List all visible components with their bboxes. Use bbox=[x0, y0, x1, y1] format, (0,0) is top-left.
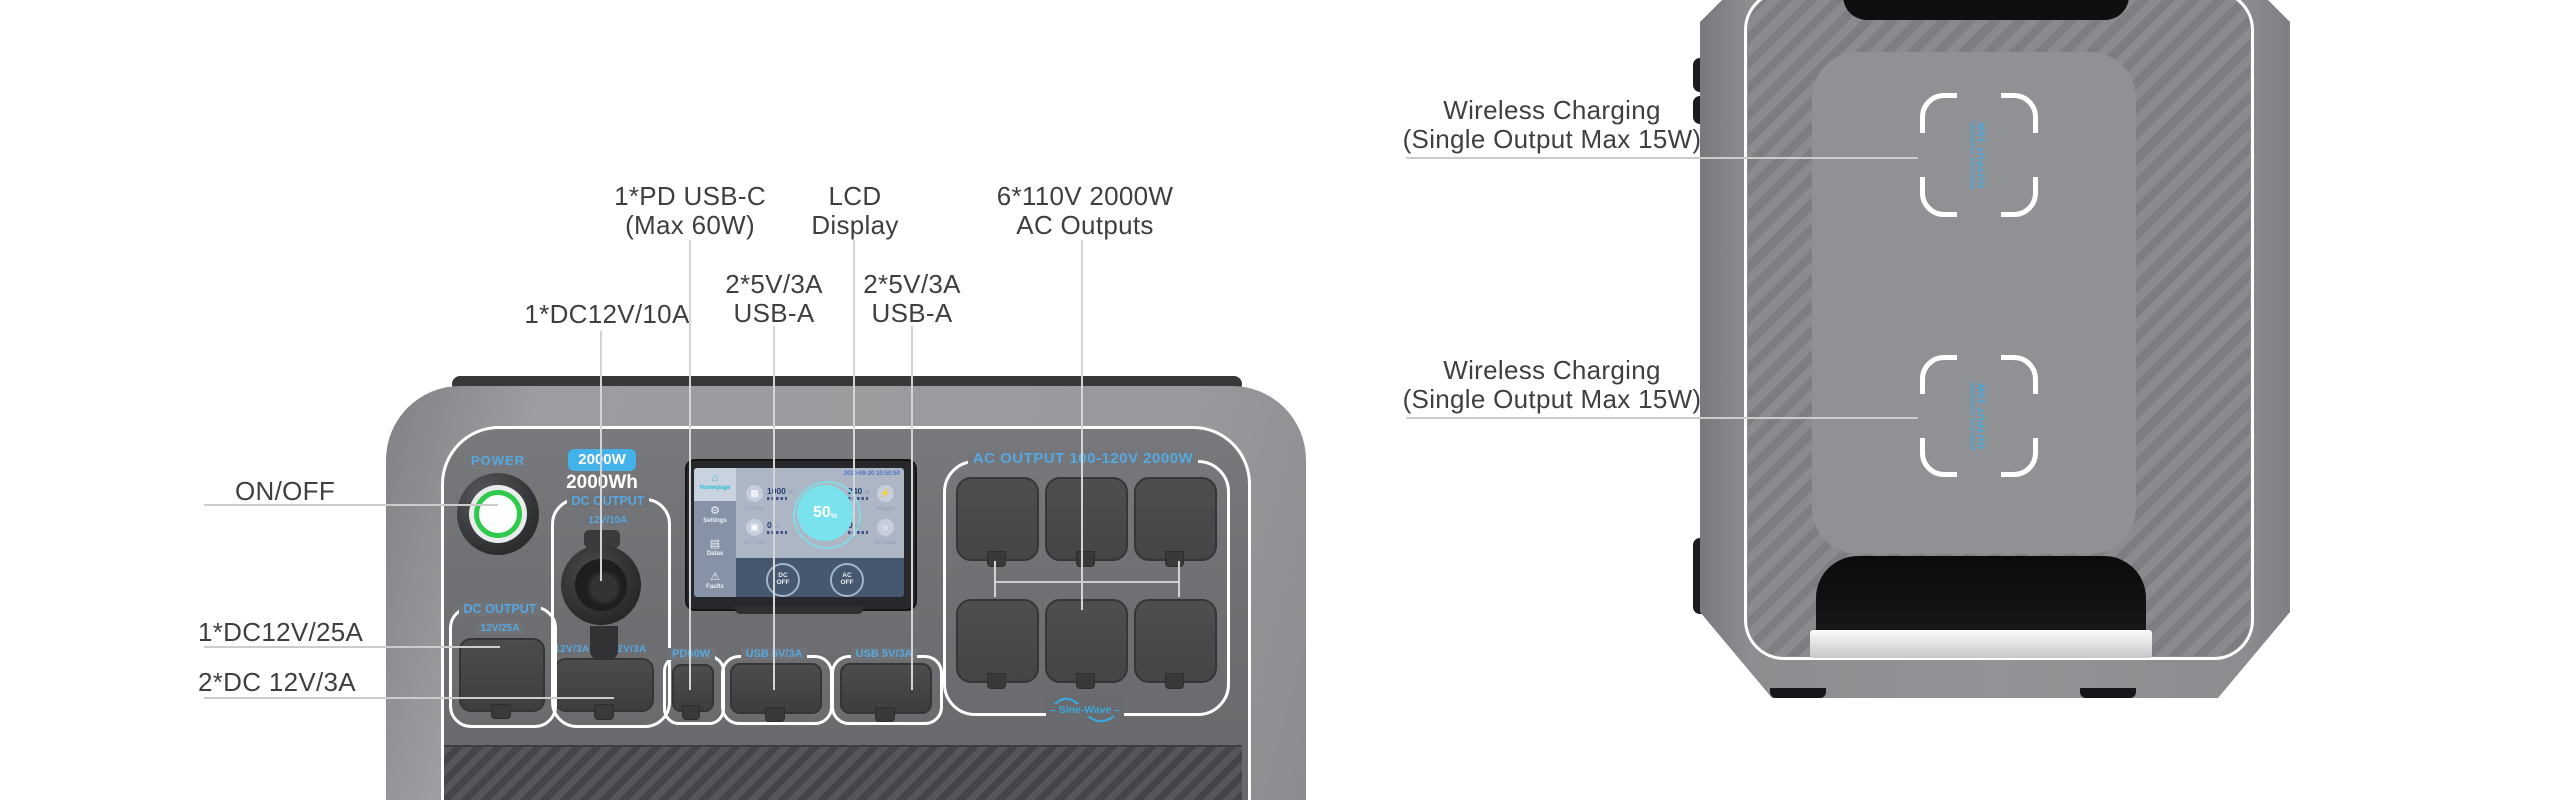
pad2-gap-bottom bbox=[1957, 468, 2001, 482]
callout-line-wireless-2 bbox=[1406, 417, 1918, 419]
lcd-menu-homepage: ⌂ Homepage bbox=[694, 468, 736, 501]
rated-power-badge: 2000W bbox=[568, 449, 636, 471]
top-handle-cutout bbox=[1843, 0, 2129, 20]
dc-12v3a-port-tab bbox=[594, 704, 614, 720]
ac-outlet-5 bbox=[1045, 599, 1128, 683]
callout-ac-bracket bbox=[994, 581, 1179, 583]
ac-outlet-6-tab bbox=[1165, 673, 1184, 689]
lcd-base bbox=[735, 606, 863, 614]
pv-label: PV/Car bbox=[737, 506, 773, 512]
callout-line-usb1 bbox=[773, 326, 775, 690]
pv-bars bbox=[767, 497, 787, 500]
pv-value: 1000 bbox=[767, 486, 786, 496]
lcd-main: 2020-09-20 10:50:50 ▦ 1000 W PV/Car ▣ 0 … bbox=[736, 468, 904, 597]
sine-wave-text: Sine-Wave bbox=[1048, 704, 1122, 716]
dc25-sub: 12V/25A bbox=[476, 623, 525, 634]
pad1-text-large: OUTPUT 15W bbox=[1977, 121, 1988, 190]
usb2-label: USB 5V/3A bbox=[851, 648, 918, 660]
product-diagram: POWER 2000W 2000Wh DC OUTPUT 12V/10A 12V… bbox=[0, 0, 2560, 800]
wireless-pad-1-text: WIRELESS CHARGING OUTPUT 15W bbox=[1971, 121, 1988, 190]
callout-line-dc25 bbox=[204, 646, 500, 648]
callout-wireless-2: Wireless Charging (Single Output Max 15W… bbox=[1385, 356, 1719, 414]
adapter-icon: ⚡ bbox=[877, 485, 894, 502]
dc-off-button: DC OFF bbox=[766, 563, 800, 597]
callout-wireless-2-line1: Wireless Charging bbox=[1443, 355, 1661, 385]
callout-ac-stub-right bbox=[1178, 561, 1180, 597]
ac-outlet-2-tab bbox=[1076, 551, 1095, 567]
home-icon: ⌂ bbox=[694, 471, 736, 485]
wireless-pad-2: WIRELESS CHARGING OUTPUT 15W bbox=[1920, 355, 2038, 477]
callout-wireless-2-line2: (Single Output Max 15W) bbox=[1403, 384, 1702, 414]
callout-dc25: 1*DC12V/25A bbox=[198, 618, 378, 647]
adapter-unit: W bbox=[865, 490, 870, 496]
dc10-title: DC OUTPUT bbox=[567, 494, 650, 508]
pad2-gap-top bbox=[1957, 350, 2001, 364]
lcd-menu-faults: ⚠ Faults bbox=[694, 567, 736, 597]
pd-usbc-port-tab bbox=[682, 705, 700, 720]
pad1-gap-right bbox=[2029, 133, 2043, 177]
bottom-handle-cutout bbox=[1816, 556, 2146, 636]
power-label: POWER bbox=[450, 454, 546, 469]
callout-usb2: 2*5V/3A USB-A bbox=[822, 270, 1002, 328]
dc-12v25a-port-tab bbox=[491, 704, 511, 719]
capacity-text: 2000Wh bbox=[556, 472, 648, 494]
wireless-pad-1: WIRELESS CHARGING OUTPUT 15W bbox=[1920, 93, 2038, 217]
top-view-body: WIRELESS CHARGING OUTPUT 15W WIRELESS CH… bbox=[1700, 0, 2290, 698]
pd-label: PD60W bbox=[667, 648, 715, 660]
ac-outlet-3 bbox=[1134, 477, 1217, 561]
callout-usb2-line2: USB-A bbox=[872, 298, 953, 328]
callout-line-wireless-1 bbox=[1406, 157, 1918, 159]
ac-outlet-4 bbox=[956, 599, 1039, 683]
battery-unit: % bbox=[831, 513, 837, 520]
callout-wireless-1-line2: (Single Output Max 15W) bbox=[1403, 124, 1702, 154]
pad1-gap-top bbox=[1957, 88, 2001, 102]
ac-outlet-6 bbox=[1134, 599, 1217, 683]
dc-load-value: 0 bbox=[767, 520, 772, 530]
ac-outlet-1-tab bbox=[987, 551, 1006, 567]
lcd-menu-datas-label: Datas bbox=[694, 551, 736, 558]
dc-load-bars bbox=[767, 531, 787, 534]
battery-gauge: 50 % bbox=[797, 485, 853, 541]
dc-12v25a-port bbox=[459, 638, 545, 712]
callout-line-on-off bbox=[204, 504, 498, 506]
callout-pd-line1: 1*PD USB-C bbox=[614, 181, 766, 211]
callout-usb2-line1: 2*5V/3A bbox=[863, 269, 961, 299]
pad2-text-large: OUTPUT 15W bbox=[1977, 382, 1988, 451]
top-view-device: WIRELESS CHARGING OUTPUT 15W WIRELESS CH… bbox=[1700, 0, 2290, 698]
adapter-label: Adapter bbox=[867, 506, 903, 512]
callout-ac: 6*110V 2000W AC Outputs bbox=[990, 182, 1180, 240]
lcd-menu: ⌂ Homepage ⚙ Settings ▤ Datas ⚠ Faults bbox=[694, 468, 736, 597]
battery-percent: 50 bbox=[813, 504, 831, 522]
pad2-gap-right bbox=[2029, 394, 2043, 438]
callout-ac-stub-left bbox=[994, 561, 996, 597]
dc-12v10a-socket-pin bbox=[587, 571, 621, 605]
lcd-screen: ⌂ Homepage ⚙ Settings ▤ Datas ⚠ Faults bbox=[694, 468, 904, 597]
callout-wireless-1: Wireless Charging (Single Output Max 15W… bbox=[1385, 96, 1719, 154]
callout-usb1-line1: 2*5V/3A bbox=[725, 269, 823, 299]
callout-wireless-1-line1: Wireless Charging bbox=[1443, 95, 1661, 125]
pv-icon: ▦ bbox=[746, 485, 763, 502]
ac-outlet-5-tab bbox=[1076, 673, 1095, 689]
callout-line-ac bbox=[1081, 240, 1083, 610]
pv-unit: W bbox=[788, 490, 793, 496]
ac-load-icon: ☼ bbox=[877, 519, 894, 536]
wireless-pad-2-text: WIRELESS CHARGING OUTPUT 15W bbox=[1971, 382, 1988, 451]
ac-outlet-2 bbox=[1045, 477, 1128, 561]
callout-dc10: 1*DC12V/10A bbox=[517, 300, 697, 329]
handle-bar bbox=[1810, 630, 2152, 658]
callout-line-pd bbox=[689, 240, 691, 690]
pad1-gap-bottom bbox=[1957, 208, 2001, 222]
callout-usb1-line2: USB-A bbox=[734, 298, 815, 328]
dc25-title: DC OUTPUT bbox=[459, 602, 542, 616]
ac-load-label: AC Load bbox=[867, 540, 903, 546]
usb-a-port-1-tab bbox=[765, 707, 785, 722]
gear-icon: ⚙ bbox=[694, 504, 736, 518]
callout-lcd-line1: LCD bbox=[829, 181, 882, 211]
pad1-gap-left bbox=[1915, 133, 1929, 177]
callout-pd: 1*PD USB-C (Max 60W) bbox=[600, 182, 780, 240]
callout-ac-line2: AC Outputs bbox=[1016, 210, 1153, 240]
foot-right bbox=[2080, 688, 2136, 698]
lcd-menu-settings: ⚙ Settings bbox=[694, 501, 736, 534]
callout-lcd-line2: Display bbox=[811, 210, 898, 240]
callout-line-dc10 bbox=[600, 331, 602, 581]
ac-outlet-3-tab bbox=[1165, 551, 1184, 567]
datas-icon: ▤ bbox=[694, 537, 736, 551]
ac-off-label: AC OFF bbox=[839, 573, 856, 587]
faults-icon: ⚠ bbox=[694, 570, 736, 584]
callout-dc3: 2*DC 12V/3A bbox=[198, 668, 378, 697]
callout-on-off: ON/OFF bbox=[235, 477, 365, 506]
callout-lcd: LCD Display bbox=[765, 182, 945, 240]
pad2-gap-left bbox=[1915, 394, 1929, 438]
power-button-green-ring bbox=[474, 490, 522, 538]
lcd-menu-homepage-label: Homepage bbox=[694, 485, 736, 492]
callout-pd-line2: (Max 60W) bbox=[625, 210, 755, 240]
dc10-sub: 12V/10A bbox=[584, 515, 633, 526]
dc-socket-cover-flap bbox=[590, 626, 618, 660]
ac-off-button: AC OFF bbox=[830, 563, 864, 597]
dc-load-icon: ▣ bbox=[746, 519, 763, 536]
usb-a-port-2-tab bbox=[875, 707, 895, 722]
lcd-menu-faults-label: Faults bbox=[694, 584, 736, 591]
lcd-button-zone bbox=[736, 558, 904, 597]
callout-ac-line1: 6*110V 2000W bbox=[997, 181, 1174, 211]
front-hatch-band bbox=[444, 745, 1242, 800]
lcd-menu-datas: ▤ Datas bbox=[694, 534, 736, 567]
sine-wave-logo: Sine-Wave bbox=[1046, 693, 1124, 727]
callout-line-dc3 bbox=[204, 697, 614, 699]
lcd-menu-settings-label: Settings bbox=[694, 518, 736, 525]
ac-outlet-1 bbox=[956, 477, 1039, 561]
dc-load-label: DC Load bbox=[737, 540, 773, 546]
callout-line-lcd bbox=[853, 240, 855, 536]
dc-off-label: DC OFF bbox=[775, 573, 792, 587]
ac-outlet-4-tab bbox=[987, 673, 1006, 689]
foot-left bbox=[1770, 688, 1826, 698]
callout-line-usb2 bbox=[911, 326, 913, 690]
